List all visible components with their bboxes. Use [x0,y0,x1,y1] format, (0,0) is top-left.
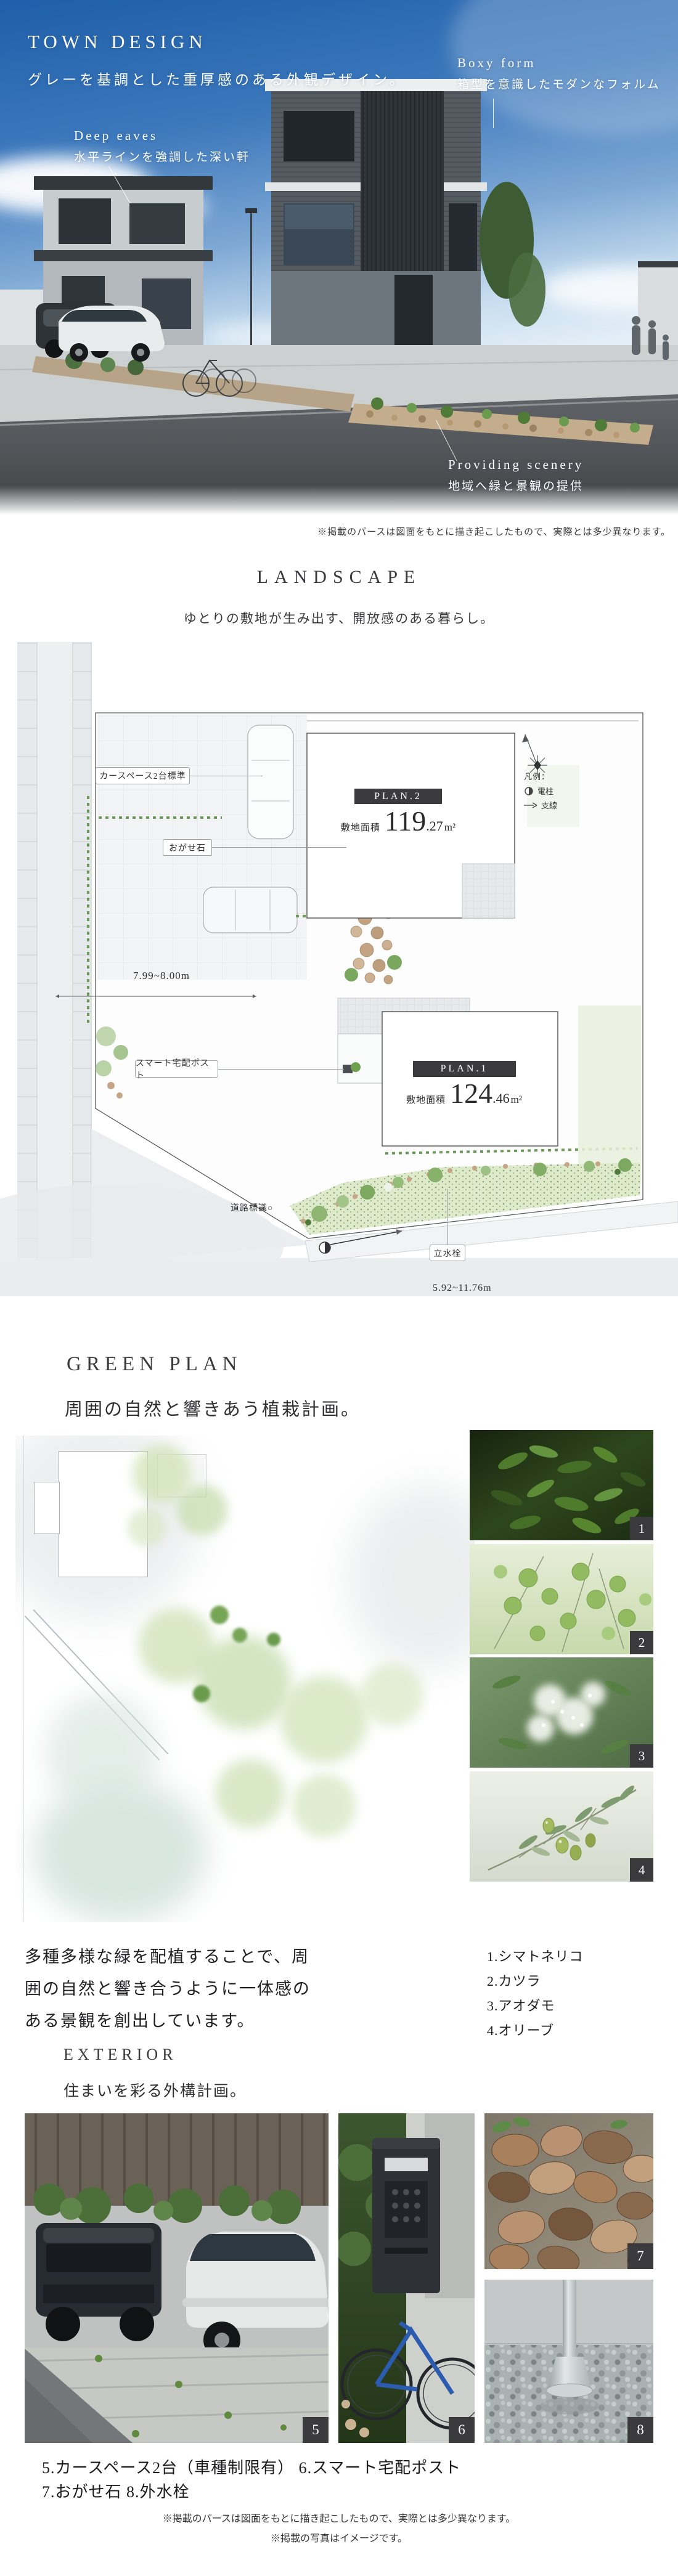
site-plan-drawing [0,642,678,1296]
exterior-photo-smart-post: 6 [338,2113,475,2443]
town-design-section: TOWN DESIGN グレーを基調とした重厚感のある外観デザイン。 Boxy … [0,0,678,518]
landscape-subtitle: ゆとりの敷地が生み出す、開放感のある暮らし。 [0,609,678,627]
dimension-width-top: 7.99~8.00m [133,970,190,982]
exterior-photo-7-number: 7 [627,2243,653,2269]
car-outline-1 [248,725,293,839]
plant-name-4: 4.オリーブ [487,2018,584,2043]
boxy-form-label-ja: 箱型を意識したモダンなフォルム [457,75,661,92]
exterior-photo-6-number: 6 [449,2417,475,2443]
plan2-area-unit: m² [444,821,455,834]
green-plan-description: 多種多様な緑を配植することで、周 囲の自然と響き合うように一体感の ある景観を創… [25,1941,311,2037]
plan2-label: PLAN.2 [354,789,442,804]
annotation-providing-scenery: Providing scenery 地域へ緑と景観の提供 [448,457,584,494]
plan1-area: 敷地面積 124 .46 m² [375,1079,553,1108]
boxy-form-label-en: Boxy form [457,55,661,71]
legend-title: 凡例： [524,770,557,782]
support-wire-icon [524,802,537,809]
plant-name-2: 2.カツラ [487,1969,584,1994]
site-plan: カースペース2台標準 おがせ石 7.99~8.00m スマート宅配ポスト PLA… [0,642,678,1296]
plan2-terrace [462,864,515,918]
car-outline-2 [203,887,297,933]
plant-photo-4-number: 4 [630,1858,653,1882]
legend-pole-label: 電柱 [537,785,553,797]
plan2-area-value: 119 [385,807,426,835]
label-smart-post: スマート宅配ポスト [135,1060,218,1078]
exterior-photo-ogase-stone: 7 [484,2113,653,2269]
exterior-photo-5-number: 5 [303,2417,329,2443]
annotation-deep-eaves: Deep eaves 水平ラインを強調した深い軒 [74,128,250,165]
plant-photo-aodamo: 3 [470,1657,653,1768]
water-tap-leader-line [447,1189,448,1245]
parked-cars [36,303,165,362]
smart-post-leader-line [218,1069,344,1070]
boxy-form-leader-line [493,99,494,128]
car-space-leader-line [190,776,263,776]
plant-name-3: 3.アオダモ [487,1994,584,2018]
plant-photo-1-number: 1 [630,1517,653,1540]
town-design-title: TOWN DESIGN [28,31,207,53]
plan2-area-decimal: .27 [426,818,443,834]
plan1-label: PLAN.1 [413,1061,516,1077]
exterior-title: EXTERIOR [63,2046,178,2064]
town-design-subtitle: グレーを基調とした重厚感のある外観デザイン。 [28,68,407,89]
green-plan-desc-line1: 多種多様な緑を配植することで、周 [25,1941,311,1973]
main-house [265,79,487,349]
providing-scenery-label-en: Providing scenery [448,457,584,473]
plant-photo-3-number: 3 [630,1744,653,1768]
green-plan-map [15,1436,475,1922]
exterior-photo-car-space: 5 [25,2113,329,2443]
plant-photo-2-number: 2 [630,1631,653,1654]
dimension-width-bottom: 5.92~11.76m [433,1283,492,1294]
green-plan-desc-line2: 囲の自然と響き合うように一体感の [25,1973,311,2005]
plant-name-1: 1.シマトネリコ [487,1944,584,1969]
exterior-photo-8-number: 8 [627,2417,653,2443]
annotation-boxy-form: Boxy form 箱型を意識したモダンなフォルム [457,55,661,92]
green-plan-subtitle: 周囲の自然と響きあう植栽計画。 [65,1395,361,1421]
label-ogase-stone: おがせ石 [163,839,212,856]
site-plan-legend: 凡例： 電柱 支線 [524,770,557,811]
brochure-page: TOWN DESIGN グレーを基調とした重厚感のある外観デザイン。 Boxy … [0,0,678,2576]
exterior-caption-line1: 5.カースペース2台（車種制限有） 6.スマート宅配ポスト [42,2455,461,2478]
legend-wire-label: 支線 [541,799,557,811]
exterior-subtitle: 住まいを彩る外構計画。 [63,2079,247,2101]
green-plan-desc-line3: ある景観を創出しています。 [25,2005,311,2037]
bottom-disclaimer-line1: ※掲載のパースは図面をもとに描き起こしたもので、実際とは多少異なります。 [0,2510,678,2525]
legend-item-wire: 支線 [524,799,557,811]
lawn-strip [578,1006,641,1184]
plan2-area-label: 敷地面積 [341,821,380,834]
green-plan-title: GREEN PLAN [67,1353,242,1376]
deep-eaves-label-en: Deep eaves [74,128,250,144]
exterior-caption-line2: 7.おがせ石 8.外水栓 [42,2479,190,2502]
label-road-sign: 道路標識○ [231,1201,273,1214]
utility-pole-icon [524,786,534,796]
label-car-space: カースペース2台標準 [96,767,190,784]
plan1-area-decimal: .46 [492,1091,510,1107]
providing-scenery-label-ja: 地域へ緑と景観の提供 [448,477,584,494]
plant-photo-katsura: 2 [470,1544,653,1654]
plant-photo-shimatoneriko: 1 [470,1430,653,1540]
landscape-title: LANDSCAPE [0,567,678,588]
plan1-area-label: 敷地面積 [406,1093,446,1106]
bottom-disclaimer-line2: ※掲載の写真はイメージです。 [0,2530,678,2545]
exterior-photo-outdoor-faucet: 8 [484,2280,653,2443]
plan1-area-unit: m² [511,1094,522,1106]
legend-item-pole: 電柱 [524,785,557,797]
plan1-area-value: 124 [450,1079,492,1108]
plan2-area: 敷地面積 119 .27 m² [308,807,488,835]
plant-photo-olive: 4 [470,1771,653,1882]
label-water-tap: 立水栓 [430,1245,465,1261]
plant-name-list: 1.シマトネリコ 2.カツラ 3.アオダモ 4.オリーブ [487,1944,584,2043]
ogase-leader-line [212,847,346,848]
deep-eaves-label-ja: 水平ラインを強調した深い軒 [74,148,250,165]
perspective-disclaimer: ※掲載のパースは図面をもとに描き起こしたもので、実際とは多少異なります。 [0,525,671,538]
